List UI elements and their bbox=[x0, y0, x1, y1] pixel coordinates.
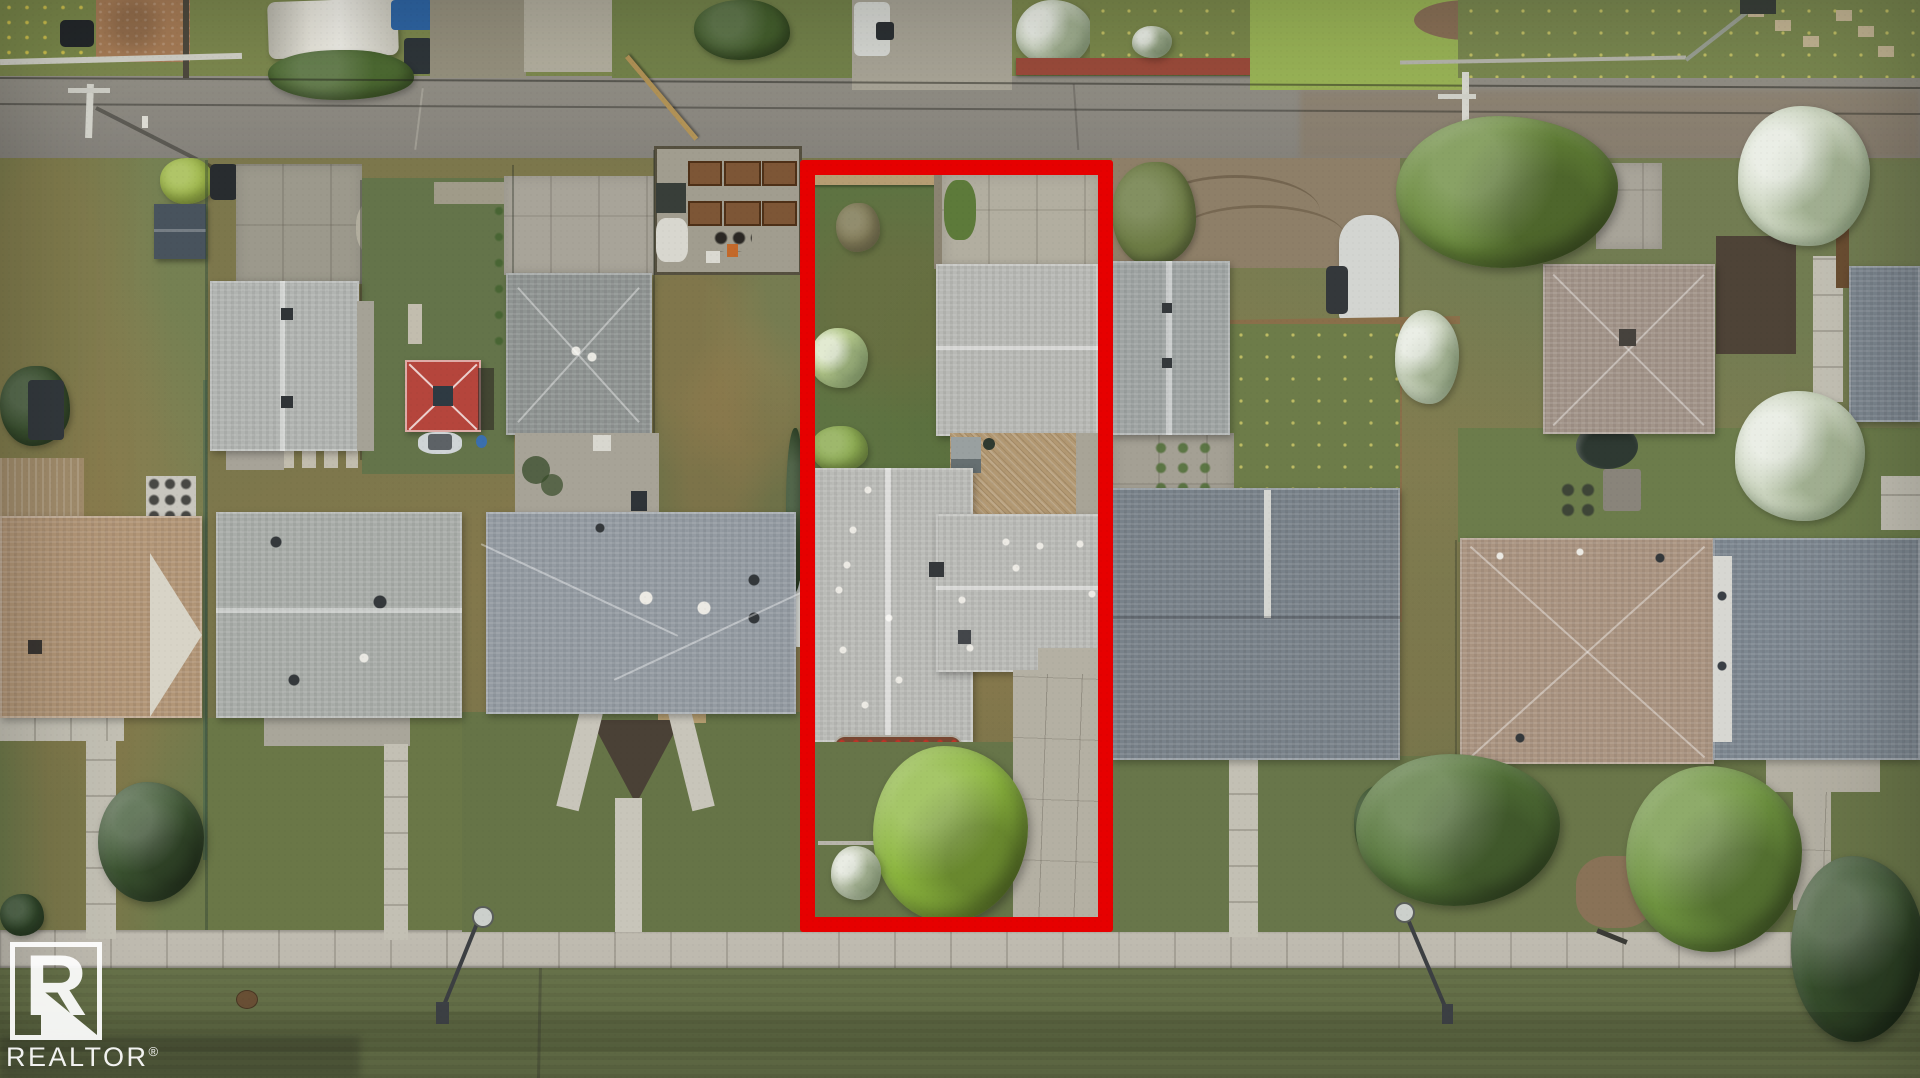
realtor-watermark-text: REALTOR® bbox=[6, 1042, 161, 1073]
streetlight-head bbox=[1394, 902, 1415, 923]
blue-bin bbox=[391, 0, 433, 30]
house-roof bbox=[216, 512, 462, 718]
fence bbox=[203, 380, 207, 860]
tire-track bbox=[1175, 205, 1345, 268]
house-roof bbox=[1713, 538, 1920, 760]
raised-bed bbox=[724, 201, 761, 226]
house-roof-dark bbox=[1110, 488, 1400, 760]
yard-chairs bbox=[1558, 480, 1600, 520]
white-box bbox=[706, 251, 720, 263]
fence bbox=[653, 150, 655, 440]
paver bbox=[1878, 46, 1894, 57]
hip-ridge bbox=[614, 587, 812, 681]
bush bbox=[0, 894, 44, 936]
dirt-patch bbox=[96, 0, 190, 62]
blue-barrel bbox=[476, 435, 487, 448]
white-bags bbox=[656, 218, 688, 262]
streetlight-head bbox=[472, 906, 494, 928]
streetlight-base bbox=[436, 1002, 449, 1024]
raised-bed bbox=[688, 201, 722, 226]
walkway bbox=[1881, 476, 1920, 530]
raised-bed bbox=[688, 161, 722, 186]
parking-pad bbox=[236, 164, 362, 284]
streetlight-base bbox=[1442, 1004, 1453, 1024]
blossom-tree bbox=[1016, 0, 1092, 66]
retaining-wall bbox=[1016, 58, 1256, 75]
house-roof bbox=[1849, 266, 1920, 422]
utility-trailer bbox=[1339, 215, 1399, 321]
fence bbox=[183, 0, 189, 78]
chimney bbox=[281, 396, 293, 408]
trees bbox=[694, 0, 790, 60]
property-boundary-highlight bbox=[800, 160, 1113, 932]
paver bbox=[1836, 10, 1852, 21]
concrete-pad bbox=[524, 0, 614, 72]
parked-car bbox=[210, 164, 238, 200]
soil-garden bbox=[1716, 236, 1796, 354]
roof-vent bbox=[1162, 303, 1172, 313]
garage-ridge bbox=[1166, 261, 1172, 435]
white-bag bbox=[593, 435, 611, 451]
registered-mark: ® bbox=[149, 1044, 161, 1059]
side-walk-strip bbox=[357, 301, 374, 451]
roof-ridge bbox=[216, 608, 462, 613]
tarp bbox=[656, 183, 686, 213]
orange-item bbox=[727, 244, 738, 257]
parking-pad bbox=[504, 176, 658, 275]
driveway-apron bbox=[1766, 758, 1880, 792]
hedge bbox=[268, 50, 414, 100]
wood-deck bbox=[0, 458, 84, 520]
fence bbox=[512, 165, 514, 275]
weeds bbox=[1112, 162, 1196, 266]
front-lawn bbox=[208, 718, 464, 930]
aerial-photo: R REALTOR® bbox=[0, 0, 1920, 1078]
blossom-shrub bbox=[1132, 26, 1172, 58]
shrub-shadow bbox=[541, 474, 563, 496]
stepping-stones bbox=[408, 304, 424, 344]
gazebo-skylight bbox=[433, 386, 453, 406]
pole-crossarm bbox=[1438, 94, 1476, 99]
shed bbox=[1740, 0, 1776, 14]
gable-wall bbox=[1264, 490, 1271, 618]
chimney bbox=[1619, 329, 1636, 346]
paver bbox=[1803, 36, 1819, 47]
roof-ridge bbox=[280, 281, 285, 451]
realtor-brand: REALTOR bbox=[6, 1042, 149, 1072]
blossom-tree bbox=[1395, 310, 1459, 404]
paver bbox=[1775, 20, 1791, 31]
picnic-table bbox=[1603, 469, 1641, 511]
house-roof bbox=[486, 512, 796, 714]
roof-vent bbox=[1162, 358, 1172, 368]
shed-ridge bbox=[154, 229, 206, 232]
blossom-tree bbox=[1738, 106, 1870, 246]
raised-bed bbox=[724, 161, 761, 186]
realtor-watermark: R REALTOR® bbox=[6, 936, 336, 1078]
hip-ridge bbox=[480, 543, 678, 637]
chimney bbox=[281, 308, 293, 320]
chimney bbox=[28, 640, 42, 654]
roof-section-line bbox=[1110, 616, 1400, 619]
raised-bed bbox=[762, 161, 797, 186]
paver bbox=[1858, 26, 1874, 37]
front-walkway bbox=[1229, 757, 1258, 937]
stepping-stones bbox=[280, 450, 358, 468]
blossom-tree bbox=[1735, 391, 1865, 521]
realtor-logo-box: R bbox=[10, 942, 102, 1040]
bbq-grill bbox=[428, 434, 452, 450]
house-roof-hip bbox=[1460, 538, 1714, 764]
bin bbox=[631, 491, 647, 511]
weedy-lawn bbox=[1090, 0, 1258, 58]
y-walkway-stem bbox=[615, 798, 642, 932]
bin bbox=[876, 22, 894, 40]
pergola bbox=[478, 368, 494, 430]
patio bbox=[264, 716, 410, 746]
pole-insulator bbox=[142, 116, 148, 128]
gable-wall bbox=[1713, 556, 1732, 742]
gravel-yard bbox=[430, 0, 526, 78]
raised-bed bbox=[762, 201, 797, 226]
parked-vehicle bbox=[1326, 266, 1348, 314]
front-walkway bbox=[384, 744, 408, 940]
parked-car bbox=[60, 20, 94, 47]
pole-crossarm bbox=[68, 88, 110, 93]
patchy-lawn bbox=[654, 275, 802, 515]
house-roof-hip bbox=[1543, 264, 1715, 434]
bins bbox=[28, 380, 64, 440]
gazebo-red-roof bbox=[405, 360, 481, 432]
house-roof-hip bbox=[506, 273, 652, 435]
